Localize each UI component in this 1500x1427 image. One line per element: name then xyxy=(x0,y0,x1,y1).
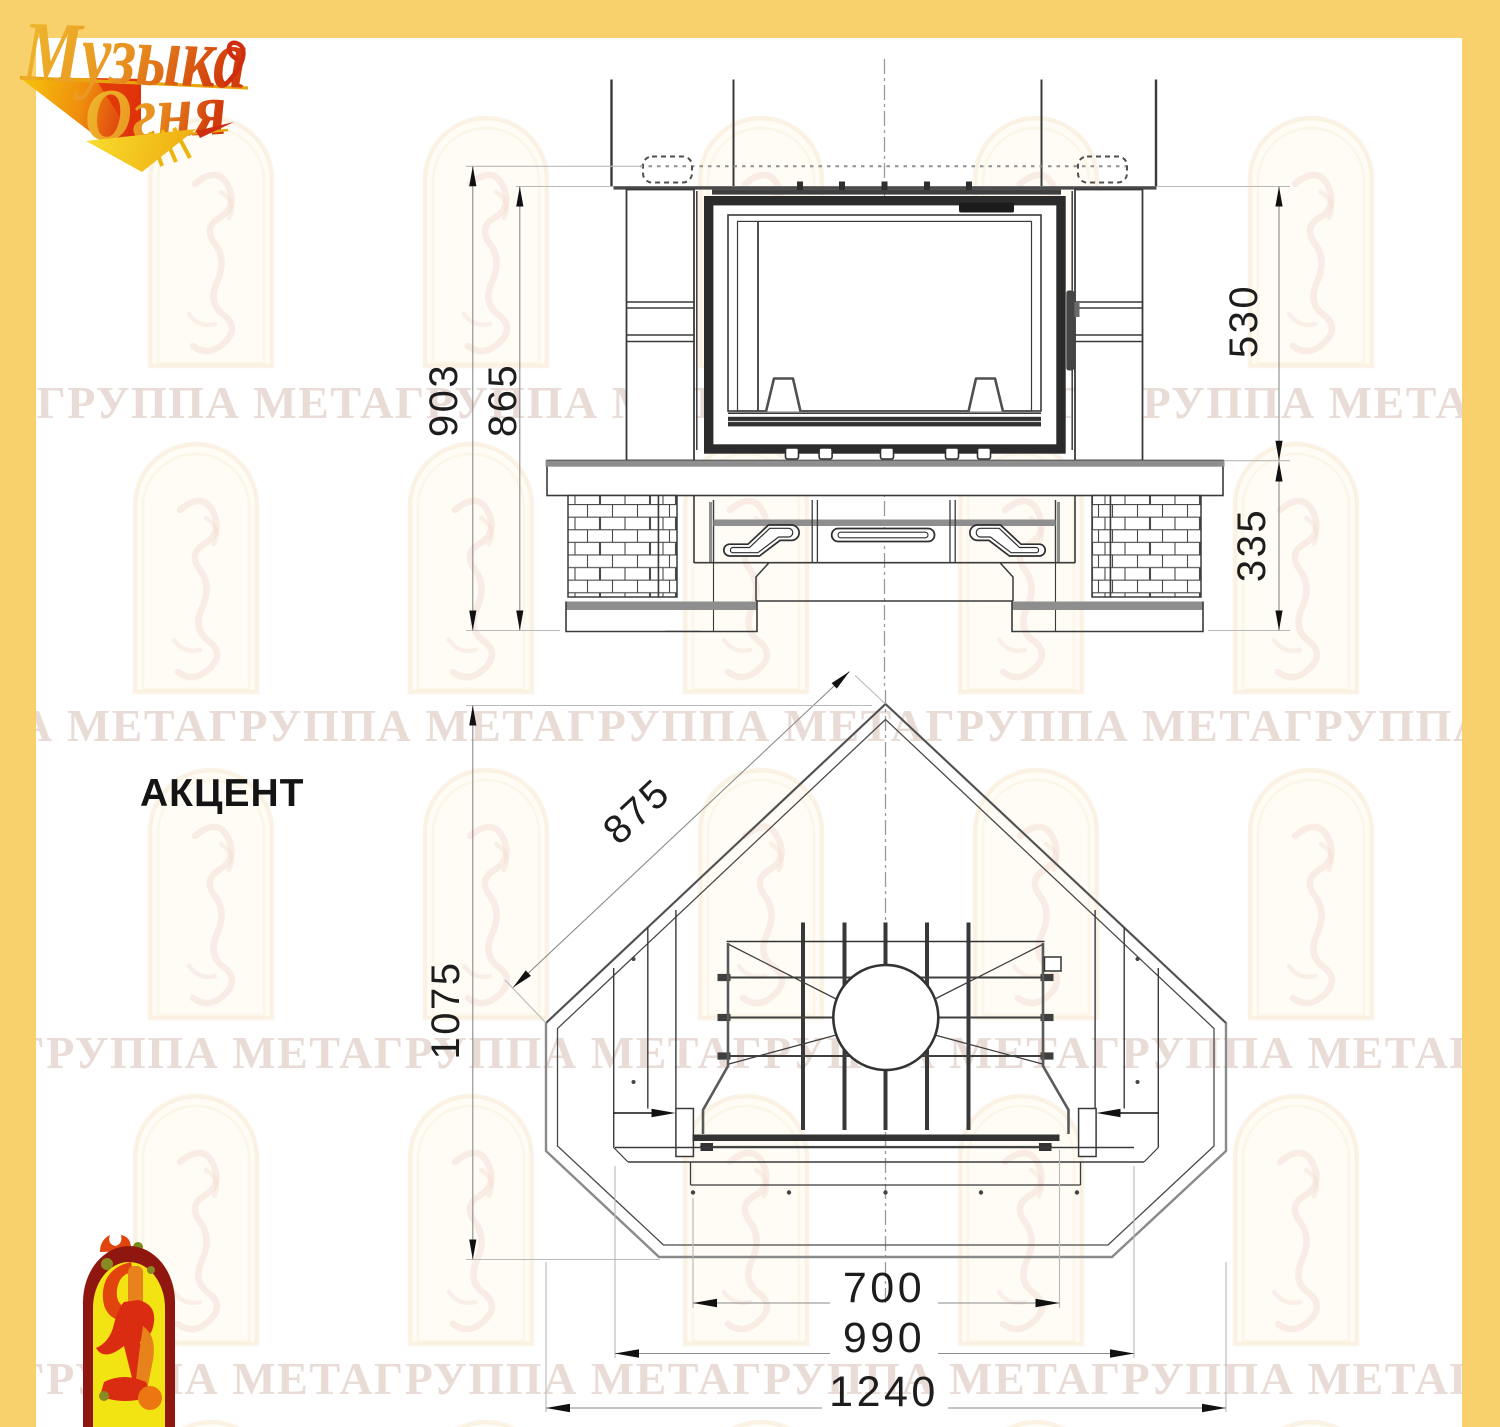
svg-text:ГРУППА МЕТАГРУППА МЕТАГРУППА М: ГРУППА МЕТАГРУППА МЕТАГРУППА МЕТАГРУППА … xyxy=(0,1353,1500,1404)
svg-text:903: 903 xyxy=(422,363,466,437)
svg-text:700: 700 xyxy=(843,1264,925,1312)
svg-text:990: 990 xyxy=(843,1314,925,1362)
svg-text:530: 530 xyxy=(1222,284,1266,358)
svg-text:1240: 1240 xyxy=(829,1368,939,1416)
svg-text:АКЦЕНТ: АКЦЕНТ xyxy=(140,772,304,815)
svg-text:1075: 1075 xyxy=(424,961,468,1060)
svg-text:865: 865 xyxy=(481,363,525,437)
svg-text:335: 335 xyxy=(1230,508,1274,582)
svg-text:ГРУППА МЕТАГРУППА МЕТАГРУППА М: ГРУППА МЕТАГРУППА МЕТАГРУППА МЕТАГРУППА … xyxy=(0,700,1500,751)
svg-text:ГРУППА МЕТАГРУППА МЕТАГРУППА М: ГРУППА МЕТАГРУППА МЕТАГРУППА МЕТАГРУППА … xyxy=(0,1027,1500,1078)
